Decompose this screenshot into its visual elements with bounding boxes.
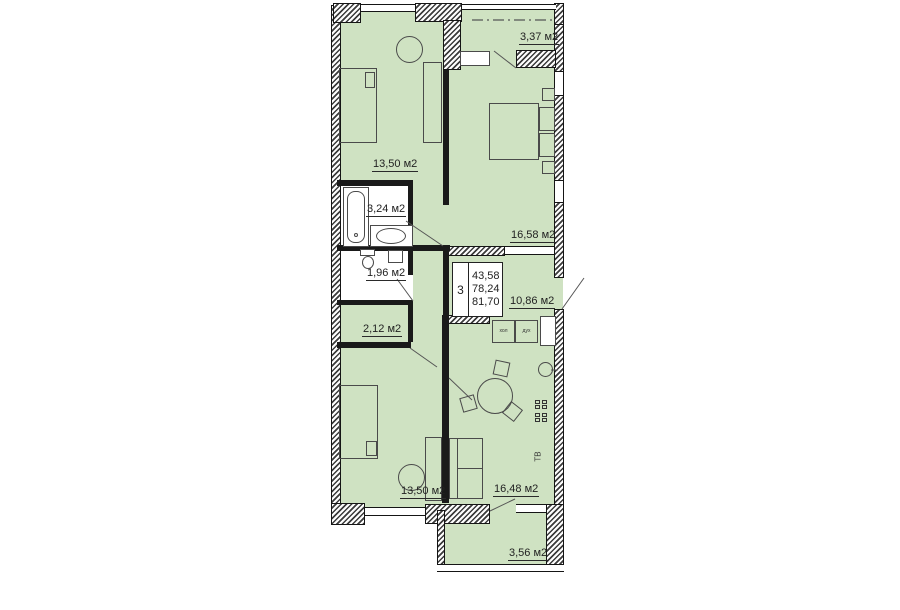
- outer-wall-bottom-mid: [425, 504, 490, 524]
- sofa-cushion-line: [458, 468, 482, 469]
- toilet-tank: [360, 249, 375, 256]
- wall-wc-right-upper: [408, 251, 413, 275]
- floor-plan: хол дух ТВ 13,50 м2 3,37 м2 16,58 м2 3,2…: [0, 0, 900, 610]
- kitchen-cabinet-fridge: хол: [492, 320, 515, 343]
- tv-label: ТВ: [534, 451, 543, 461]
- area-total: 81,70: [472, 296, 502, 309]
- window-right-1: [554, 72, 564, 95]
- room-label-corridor: 2,12 м2: [362, 323, 402, 337]
- ceiling-lamp-icon: [396, 36, 423, 63]
- area-living: 43,58: [472, 270, 502, 283]
- apartment-info-box: 3 43,58 78,24 81,70: [452, 262, 503, 317]
- window-bottom-left: [365, 507, 425, 516]
- pillow-icon: [365, 72, 375, 88]
- balcony-door-window: [516, 504, 546, 513]
- window-top-left: [361, 4, 415, 12]
- pillow-icon: [539, 133, 555, 157]
- balcony-bottom-wall-right: [546, 504, 564, 568]
- drain-icon: [354, 233, 358, 237]
- room-label-hall: 10,86 м2: [509, 295, 555, 309]
- stove-icon: [535, 400, 548, 409]
- area-main: 78,24: [472, 283, 502, 296]
- stove-icon: [535, 413, 548, 422]
- balcony-door-sill: [460, 51, 490, 66]
- nightstand-icon: [542, 161, 555, 174]
- room-label-bathroom: 3,24 м2: [366, 203, 406, 217]
- interior-wall-hatched-top: [443, 20, 461, 70]
- wardrobe-top-left: [423, 62, 442, 143]
- room-label-bedroom-bottom-left: 13,50 м2: [400, 485, 446, 499]
- kitchen-cabinet-oven: дух: [515, 320, 538, 343]
- wall-corridor-bottom: [337, 342, 411, 348]
- outer-wall-right-2: [554, 95, 564, 181]
- pillow-icon: [366, 441, 377, 456]
- balcony-top-front: [462, 4, 556, 10]
- room-label-bedroom-top-right: 16,58 м2: [510, 229, 556, 243]
- kitchen-sink-icon: [538, 362, 553, 377]
- outer-wall-bottom-left: [331, 503, 365, 525]
- hall-top-wall: [443, 246, 505, 256]
- wall-bedroom-tl-right: [443, 70, 449, 205]
- room-label-living-kitchen: 16,48 м2: [493, 483, 539, 497]
- oven-label: дух: [516, 328, 537, 334]
- sink-icon: [376, 228, 406, 244]
- room-label-bedroom-top-left: 13,50 м2: [372, 158, 418, 172]
- fridge-icon: [540, 316, 556, 346]
- wc-sink-icon: [388, 250, 403, 263]
- room-label-wc: 1,96 м2: [366, 267, 406, 281]
- wall-bedroom-bl-right: [442, 317, 449, 503]
- balcony-bottom-front: [437, 564, 564, 572]
- areas-list: 43,58 78,24 81,70: [469, 263, 502, 316]
- door-lintel-bedroom-right: [505, 246, 554, 255]
- room-label-balcony-bottom: 3,56 м2: [508, 547, 548, 561]
- wall-wc-right-lower: [408, 300, 413, 342]
- balcony-bottom-wall-left: [437, 510, 445, 570]
- rooms-count: 3: [453, 263, 469, 316]
- room-label-balcony-top: 3,37 м2: [519, 31, 559, 45]
- nightstand-icon: [542, 88, 555, 101]
- wall-hall-left: [443, 251, 449, 317]
- wall-bathroom-top: [337, 180, 413, 186]
- balcony-top-wall: [516, 50, 556, 68]
- pillow-icon: [539, 107, 555, 131]
- outer-wall-top-left: [333, 3, 361, 23]
- wall-wc-bottom: [337, 300, 413, 305]
- bed-top-right: [489, 103, 539, 160]
- chair-icon: [493, 360, 511, 378]
- window-right-2: [554, 181, 564, 202]
- fridge-label: хол: [493, 328, 514, 334]
